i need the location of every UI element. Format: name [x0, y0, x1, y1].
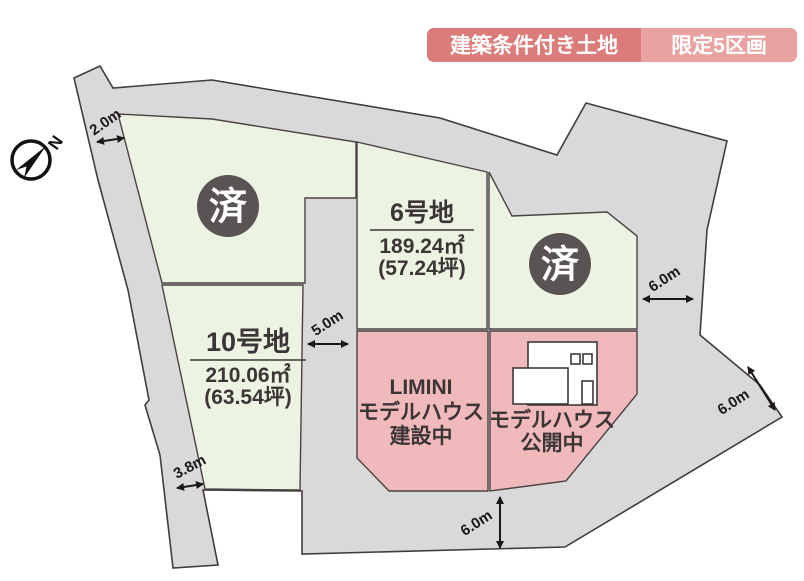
site-plan-map: 済 済 6号地 189.24㎡ (57.24坪) 10号地 210.06㎡ (6…: [0, 0, 804, 581]
badge-right-bg-square: [641, 28, 661, 62]
badge-condition-label: 建築条件付き土地: [450, 34, 618, 58]
compass-needle-icon: [16, 146, 46, 178]
plot-6-area-tsubo: (57.24坪): [378, 257, 466, 280]
model-open-line2: 公開中: [521, 432, 584, 455]
house-window-icon: [571, 354, 580, 364]
house-door-icon: [582, 381, 593, 404]
compass-icon: N: [12, 132, 67, 179]
sold-badge-label: 済: [541, 245, 580, 287]
condition-badge: 建築条件付き土地 限定5区画: [427, 28, 797, 62]
house-window-icon: [583, 354, 592, 364]
plot-10-name: 10号地: [206, 327, 290, 357]
model-construction-line2: モデルハウス: [358, 400, 484, 424]
model-open-line1: モデルハウス: [489, 408, 615, 432]
sold-badge-label: 済: [209, 187, 248, 229]
plot-6-name: 6号地: [390, 199, 454, 227]
site-plan-page: 済 済 6号地 189.24㎡ (57.24坪) 10号地 210.06㎡ (6…: [0, 0, 804, 581]
model-construction-brand: LIMINI: [390, 376, 453, 399]
plot-6-area-m2: 189.24㎡: [379, 234, 464, 258]
badge-count-label: 限定5区画: [671, 34, 767, 58]
plot-10-area-tsubo: (63.54坪): [204, 386, 292, 409]
model-construction-line3: 建設中: [390, 424, 453, 448]
plot-10-area-m2: 210.06㎡: [205, 363, 290, 387]
